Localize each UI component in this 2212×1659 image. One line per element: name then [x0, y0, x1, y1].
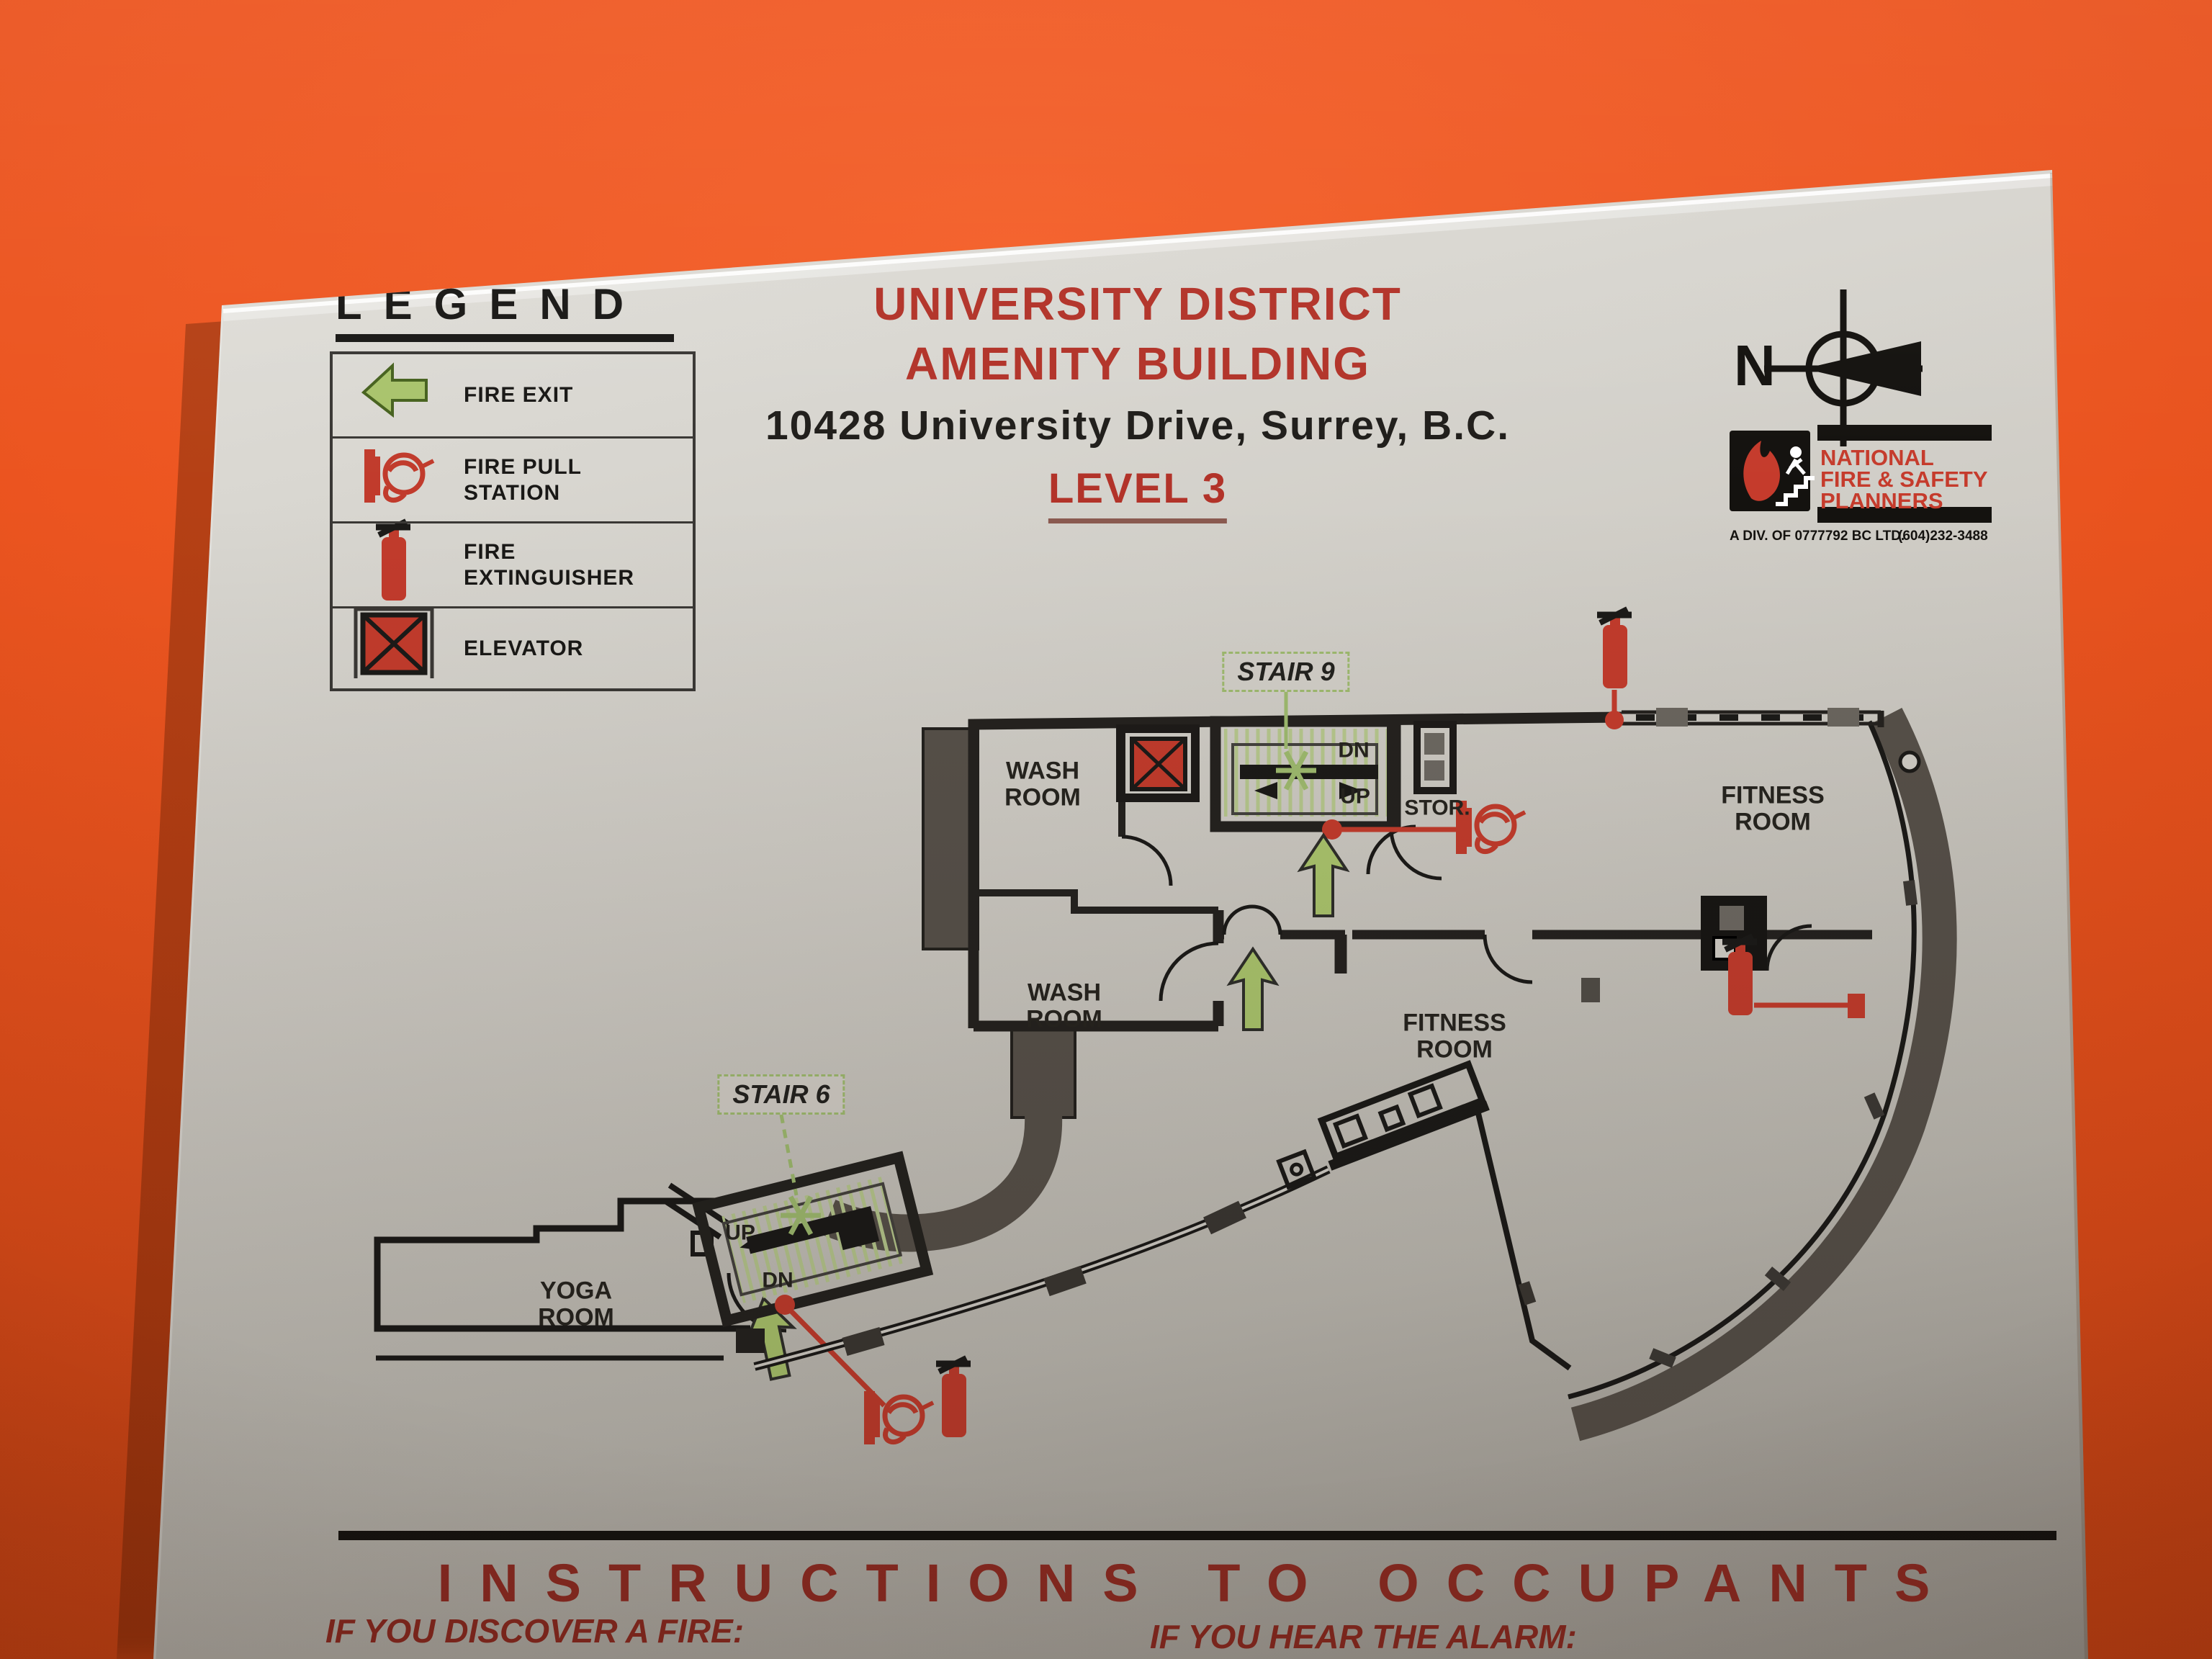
legend-underline: [336, 334, 674, 342]
extinguisher-line-right: [1754, 994, 1865, 1018]
logo-division-text: A DIV. OF 0777792 BC LTD.: [1730, 529, 1905, 544]
lower-fitness-wall: [1478, 1110, 1570, 1368]
elevator-shaft-icon: [1120, 729, 1195, 798]
stair9-up-label: UP: [1340, 785, 1370, 809]
instructions-divider: [338, 1531, 2056, 1540]
free-column: [1581, 978, 1600, 1002]
wall-detail-circle: [1900, 752, 1919, 771]
fire-exit-arrow-icon: [1300, 835, 1346, 916]
legend-label: FIRE EXIT: [464, 382, 573, 408]
building-title-line1: UNIVERSITY DISTRICT: [873, 277, 1402, 331]
compass-icon: [1764, 289, 1923, 446]
fire-extinguisher-icon: [1597, 609, 1632, 688]
legend-label: FIRE PULL STATION: [464, 454, 582, 506]
logo-name-line1: NATIONAL: [1820, 446, 1934, 469]
room-label-storage: STOR.: [1404, 796, 1470, 820]
legend-row-elevator: ELEVATOR: [333, 606, 693, 688]
legend-label: ELEVATOR: [464, 636, 583, 662]
legend-row-fire-exit: FIRE EXIT: [333, 354, 693, 436]
fire-extinguisher-icon: [936, 1358, 971, 1437]
legend-label: FIRE EXTINGUISHER: [464, 539, 634, 591]
stair6-down-label: DN: [762, 1269, 793, 1292]
stair9-down-label: DN: [1338, 739, 1369, 763]
fire-exit-arrow-icon: [1230, 949, 1276, 1030]
logo-phone: (604)232-3488: [1898, 529, 1988, 544]
storage-closet: [1417, 724, 1453, 791]
instructions-heading: INSTRUCTIONS TO OCCUPANTS: [438, 1552, 1958, 1614]
compass-north-label: N: [1734, 333, 1776, 399]
logo-name-line2: FIRE & SAFETY: [1820, 468, 1988, 490]
room-label-yoga: YOGA ROOM: [538, 1278, 614, 1332]
extinguisher-line-top: [1605, 690, 1624, 729]
room-label-fitness-1: FITNESS ROOM: [1721, 783, 1825, 837]
building-address: 10428 University Drive, Surrey, B.C.: [765, 402, 1510, 449]
stair6-label: STAIR 6: [717, 1074, 845, 1115]
balcony-structure: [1271, 1063, 1490, 1187]
fire-pull-station-icon: [864, 1391, 933, 1444]
building-title-line2: AMENITY BUILDING: [905, 337, 1370, 390]
stair9-label: STAIR 9: [1222, 652, 1349, 692]
legend-title: LEGEND: [336, 279, 645, 329]
instructions-col1-heading: IF YOU DISCOVER A FIRE:: [325, 1611, 744, 1650]
legend-row-fire-pull-station: FIRE PULL STATION: [333, 436, 693, 521]
logo-name-line3: PLANNERS: [1820, 490, 1943, 512]
room-label-fitness-2: FITNESS ROOM: [1403, 1010, 1506, 1064]
stair6-up-label: UP: [725, 1221, 755, 1245]
room-label-washroom-1: WASH ROOM: [1004, 758, 1081, 812]
legend-row-fire-extinguisher: FIRE EXTINGUISHER: [333, 521, 693, 606]
floor-plan-artwork: [0, 0, 2212, 1659]
room-label-washroom-2: WASH ROOM: [1026, 980, 1102, 1034]
instructions-col2-heading: IF YOU HEAR THE ALARM:: [1150, 1617, 1577, 1656]
level-indicator: LEVEL 3: [1048, 464, 1227, 523]
legend-box: FIRE EXIT FIRE PULL STATION FIRE EXTINGU…: [330, 351, 696, 691]
evacuation-sign-panel: LEGEND FIRE EXIT FIRE PULL STATION FIRE …: [0, 0, 2212, 1659]
